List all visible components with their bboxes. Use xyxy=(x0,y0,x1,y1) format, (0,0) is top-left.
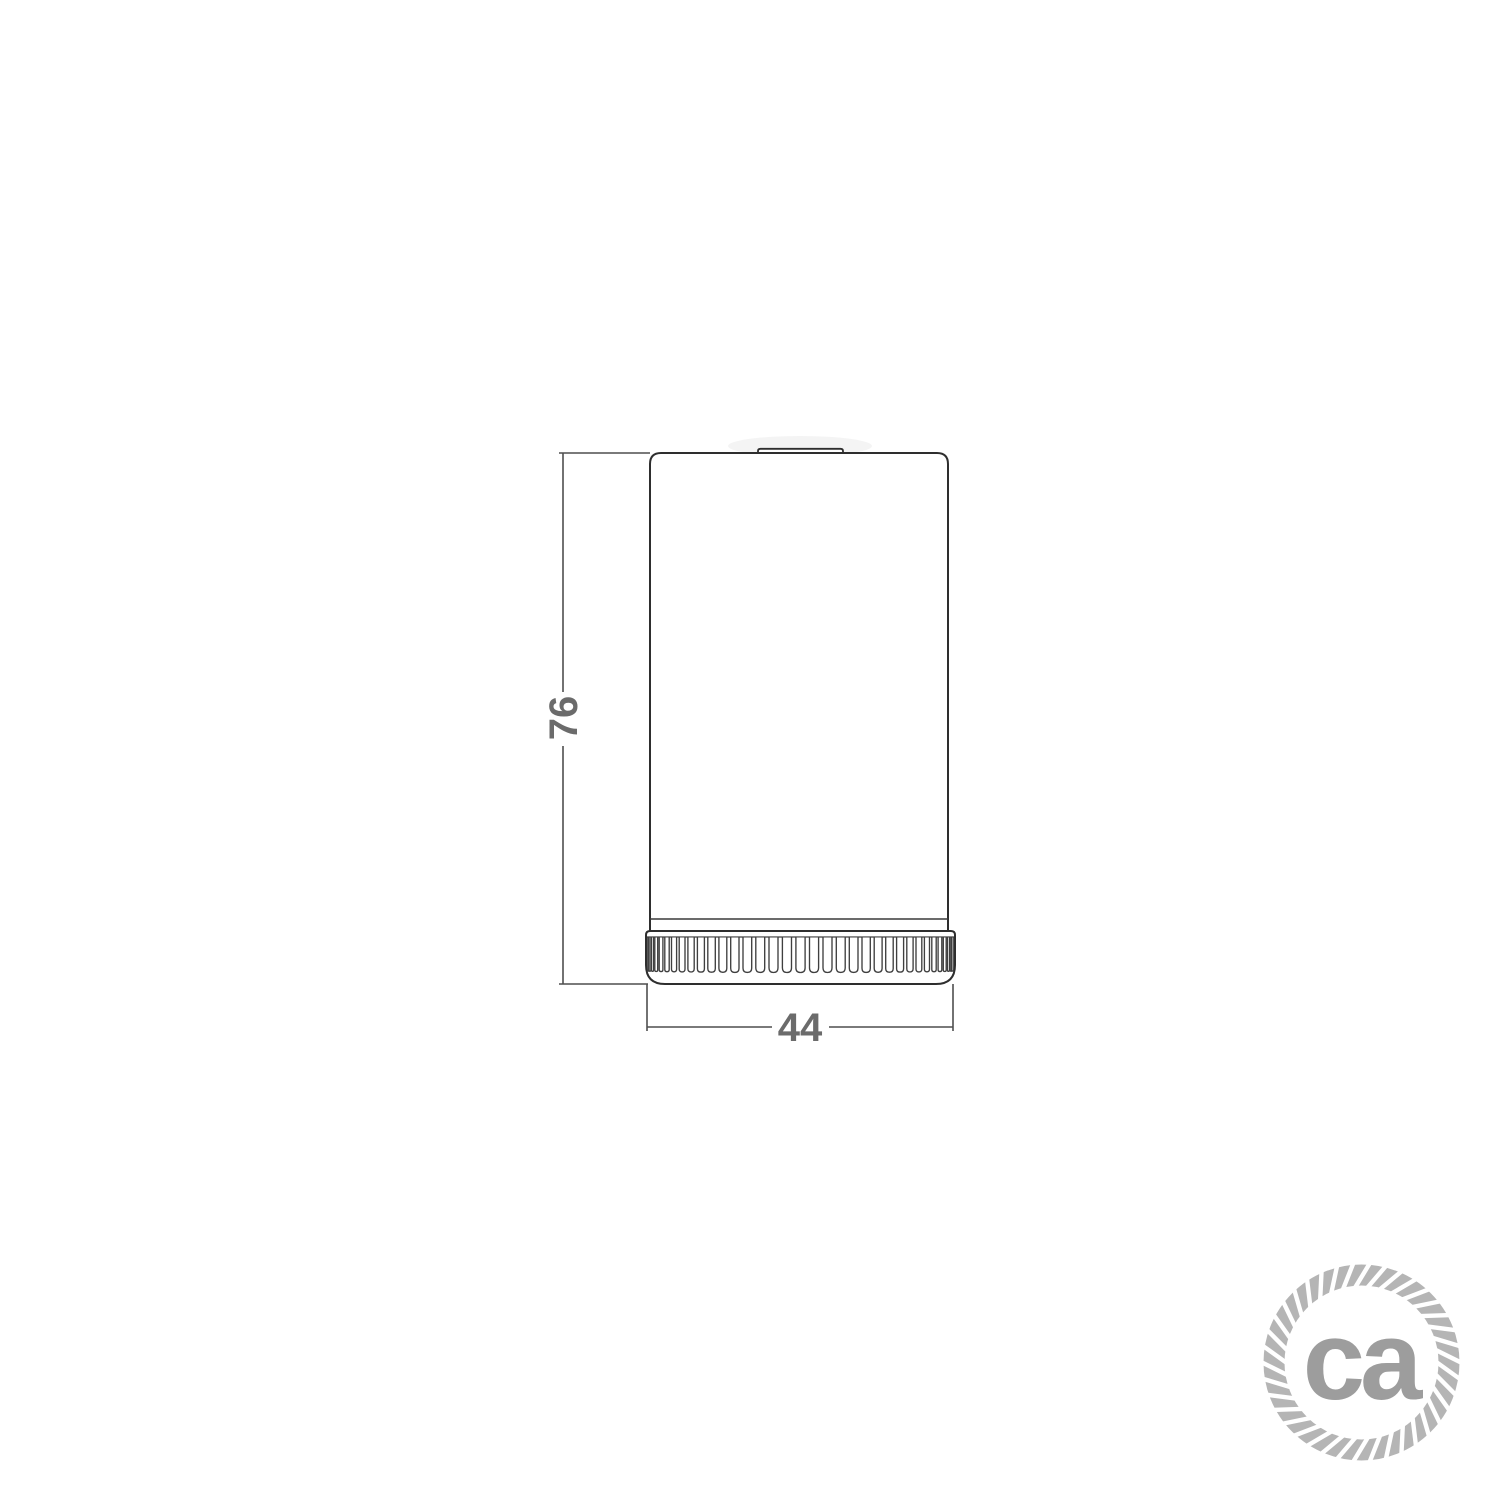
knurl-rib xyxy=(731,938,739,973)
logo-text: ca xyxy=(1303,1298,1423,1423)
knurl-rib xyxy=(679,938,685,972)
technical-drawing-canvas: 76 44 ca xyxy=(0,0,1500,1500)
knurl-ribs xyxy=(648,938,953,973)
rope-strand-separator xyxy=(1401,1426,1402,1455)
knurl-rib xyxy=(849,938,858,973)
knurl-rib xyxy=(874,938,882,973)
knurl-rib xyxy=(862,938,870,973)
knurl-rib xyxy=(907,938,913,973)
knurl-rib xyxy=(665,938,669,972)
knurl-rib xyxy=(756,938,765,973)
knurl-rib xyxy=(655,938,658,972)
knurl-rib xyxy=(659,938,663,972)
lamp-holder-body xyxy=(650,453,948,932)
knurl-rib xyxy=(697,938,704,973)
knurl-rib xyxy=(796,938,805,973)
knurl-rib xyxy=(743,938,752,973)
knurl-rib xyxy=(708,938,716,973)
rope-strand-separator xyxy=(1421,1315,1450,1316)
rope-strand-separator xyxy=(1273,1409,1302,1410)
width-dimension-label: 44 xyxy=(778,1006,823,1050)
knurl-rib xyxy=(649,938,651,972)
dimension-diagram: 76 44 ca xyxy=(0,0,1500,1500)
knurl-rib xyxy=(943,938,946,972)
knurl-rib xyxy=(719,938,727,973)
knurl-rib xyxy=(672,938,677,972)
knurl-rib xyxy=(836,938,845,973)
knurl-rib xyxy=(938,938,942,972)
knurl-rib xyxy=(688,938,694,973)
rope-strand-separator xyxy=(1320,1270,1321,1299)
knurl-rib xyxy=(769,938,778,973)
knurl-rib xyxy=(932,938,936,972)
knurl-rib xyxy=(916,938,922,972)
knurl-rib xyxy=(924,938,929,972)
knurl-rib xyxy=(652,938,654,972)
knurl-rib xyxy=(951,938,953,972)
knurl-rib xyxy=(823,938,832,973)
knurl-rib xyxy=(782,938,791,973)
knurl-rib xyxy=(886,938,894,973)
knurl-rib xyxy=(947,938,949,972)
height-dimension-label: 76 xyxy=(542,696,586,741)
knurl-rib xyxy=(897,938,904,973)
knurl-rib xyxy=(810,938,819,973)
